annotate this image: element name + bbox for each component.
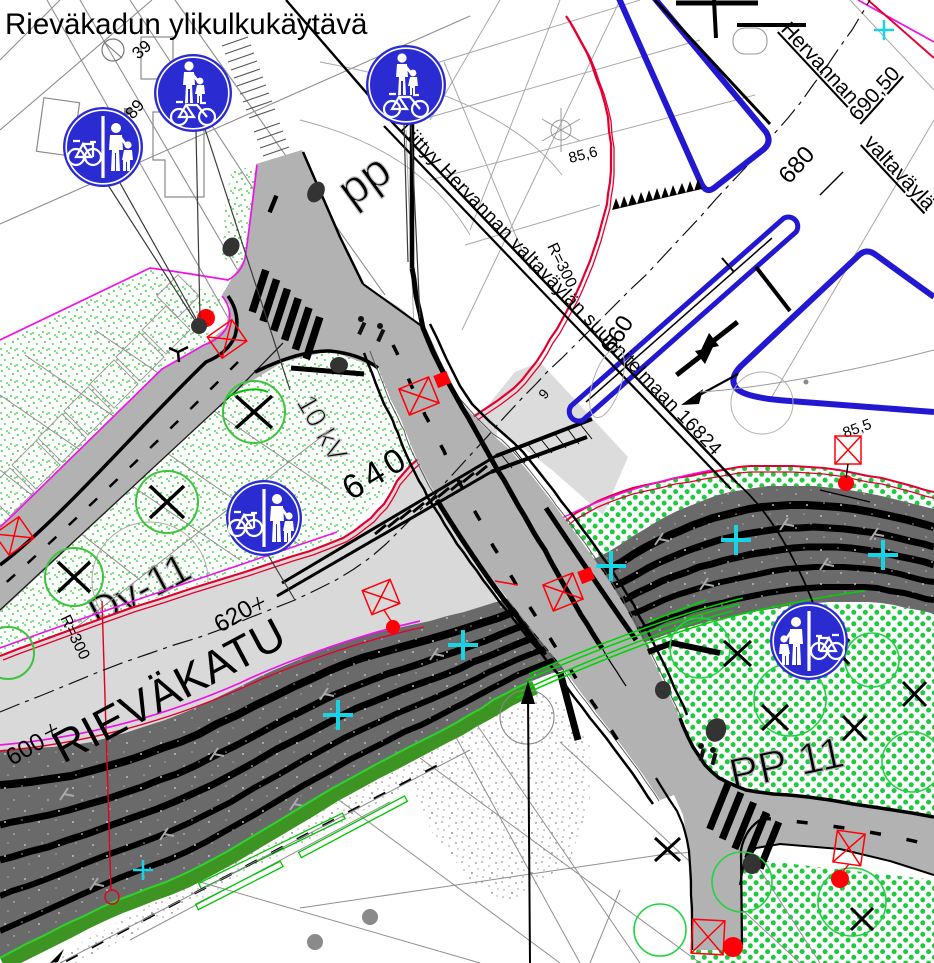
svg-text:Rieväkadun ylikulkukäytävä: Rieväkadun ylikulkukäytävä	[5, 8, 368, 41]
